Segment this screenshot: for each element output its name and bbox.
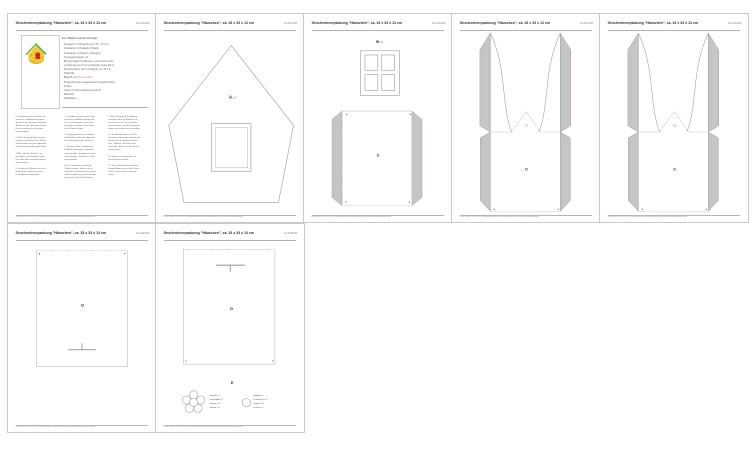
svg-text:B x 2: B x 2	[376, 40, 383, 44]
svg-text:E: E	[231, 381, 234, 385]
svg-text:D: D	[81, 303, 84, 307]
svg-text:A x 2: A x 2	[229, 95, 237, 100]
svg-text:C: C	[673, 168, 676, 172]
svg-text:C: C	[525, 168, 528, 172]
svg-text:C: C	[377, 154, 380, 158]
svg-text:D: D	[230, 307, 233, 311]
